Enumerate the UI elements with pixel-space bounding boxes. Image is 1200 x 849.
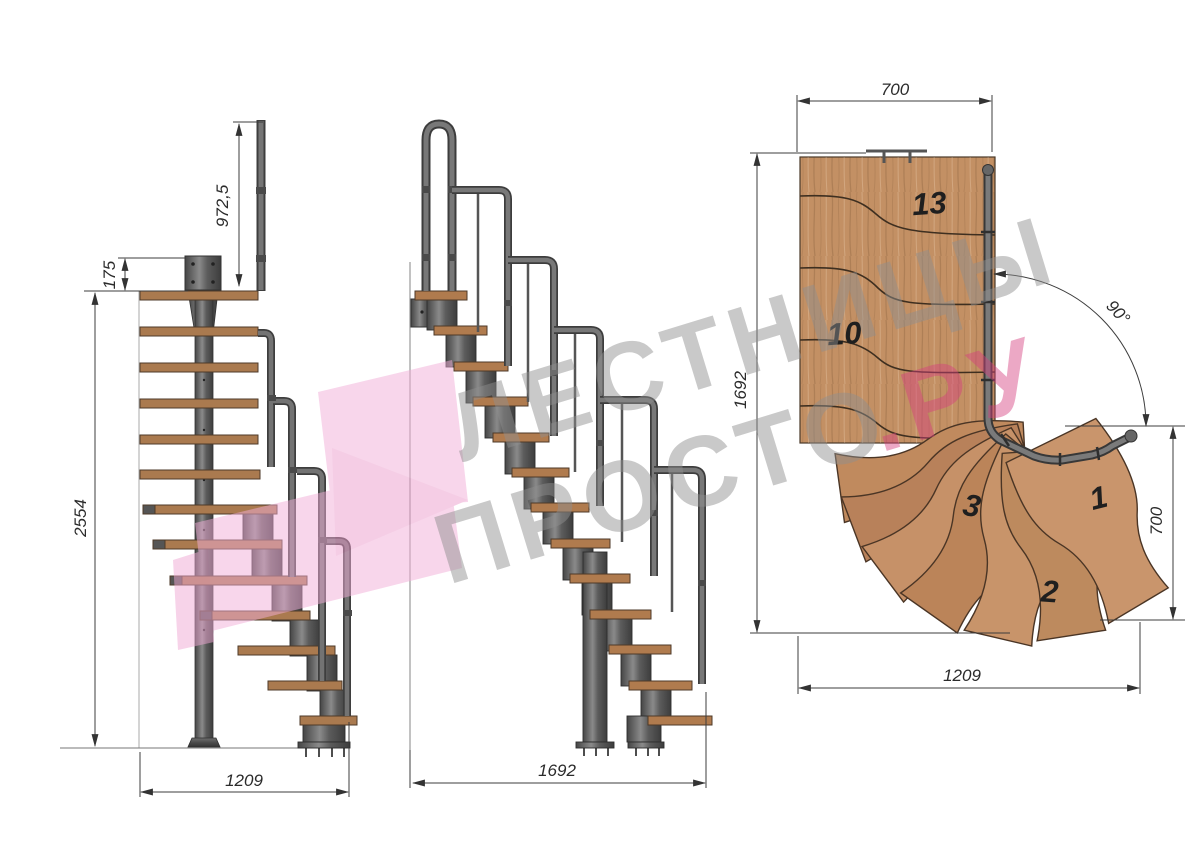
dim-plan-bottom-width: 1209 bbox=[943, 666, 981, 685]
dim-total-height: 2554 bbox=[71, 499, 90, 538]
dim-plan-right-depth: 700 bbox=[1147, 506, 1166, 535]
dim-turn-angle: 90° bbox=[1102, 296, 1134, 328]
step-number-13: 13 bbox=[911, 185, 948, 222]
step-number-2: 2 bbox=[1039, 573, 1060, 609]
dim-handrail-height: 972,5 bbox=[213, 184, 232, 227]
dim-front-footprint: 1692 bbox=[538, 761, 576, 780]
drawing-canvas: 972,5 175 2554 1209 bbox=[0, 0, 1200, 849]
dim-side-footprint: 1209 bbox=[225, 771, 263, 790]
side-elevation-view: 972,5 175 2554 1209 bbox=[60, 120, 357, 797]
logo-shape-left bbox=[173, 549, 214, 650]
dim-plate-height: 175 bbox=[100, 260, 119, 289]
staircase-drawing: 972,5 175 2554 1209 bbox=[0, 0, 1200, 849]
dim-plan-top-width: 700 bbox=[881, 80, 910, 99]
